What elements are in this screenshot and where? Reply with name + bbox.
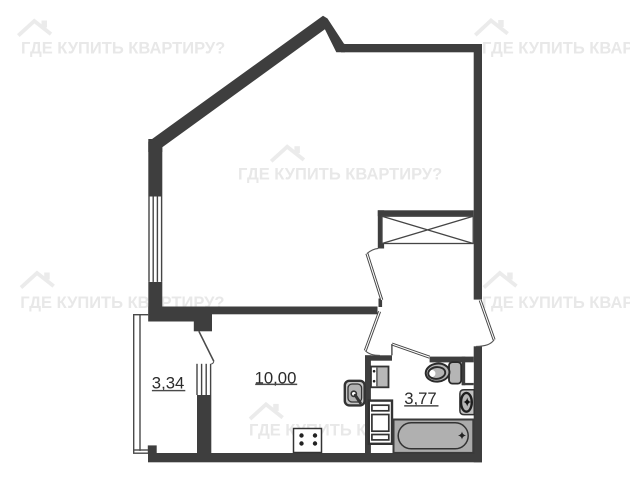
svg-text:ГДЕ КУПИТЬ КВАРТИРУ?: ГДЕ КУПИТЬ КВАРТИРУ? <box>482 39 630 57</box>
svg-text:ГДЕ КУПИТЬ КВАРТИРУ?: ГДЕ КУПИТЬ КВАРТИРУ? <box>238 165 442 183</box>
svg-text:ГДЕ КУПИТЬ КВАРТИРУ?: ГДЕ КУПИТЬ КВАРТИРУ? <box>482 294 630 312</box>
svg-text:3,34: 3,34 <box>152 374 184 393</box>
svg-text:3,77: 3,77 <box>404 389 436 408</box>
svg-text:ГДЕ КУПИТЬ КВАРТИРУ?: ГДЕ КУПИТЬ КВАРТИРУ? <box>21 39 225 57</box>
